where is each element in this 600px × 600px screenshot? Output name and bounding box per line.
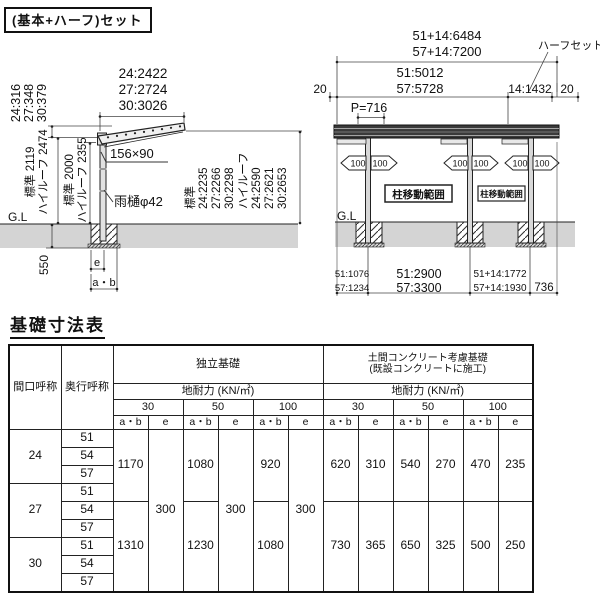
range-100-6: 100	[534, 159, 549, 169]
span-dim-2b: 57:3300	[396, 281, 441, 295]
cell-indep-ab100-g1: 920	[253, 429, 288, 501]
cell-doma-ab100-g1: 470	[463, 429, 498, 501]
rear-height-5: 24:2590	[251, 167, 263, 209]
sub-header-e: e	[358, 415, 393, 429]
cell-okuyuki: 51	[61, 483, 113, 501]
col-header-maguchi: 間口呼称	[9, 345, 61, 429]
cell-okuyuki: 51	[61, 429, 113, 447]
main-dim-57: 57:5728	[397, 81, 444, 96]
column-1	[366, 138, 371, 243]
cell-doma-e100-g2: 250	[498, 501, 533, 592]
bearing-header-1: 地耐力 (KN/㎡)	[113, 383, 323, 399]
rear-height-0: 標準	[183, 186, 197, 209]
beam-size-label: 156×90	[110, 146, 154, 161]
rise-dim-24: 24:316	[9, 84, 23, 122]
total-dim-51: 51+14:6484	[412, 28, 481, 43]
sub-header-e: e	[288, 415, 323, 429]
width-dim-24: 24:2422	[119, 66, 168, 81]
ground-band-left	[0, 224, 298, 248]
edge-dim-left: 20	[313, 82, 327, 96]
rise-dim-27: 27:348	[22, 84, 36, 122]
sub-header-e: e	[218, 415, 253, 429]
table-row: 54 1310 1230 1080 730 365 650 325 500 25…	[9, 501, 533, 519]
load-100: 100	[253, 399, 323, 415]
group-header-independent: 独立基礎	[113, 345, 323, 383]
span-dim-3b: 57+14:1930	[473, 283, 527, 294]
width-dim-27: 27:2724	[119, 82, 168, 97]
roof-beam	[334, 125, 559, 138]
span-dim-4: 736	[534, 282, 553, 294]
cell-indep-ab30-g2: 1310	[113, 501, 148, 592]
cell-okuyuki: 51	[61, 537, 113, 555]
cell-indep-ab30-g1: 1170	[113, 429, 148, 501]
roof-panel	[98, 123, 186, 147]
cell-maguchi-27: 27	[9, 483, 61, 537]
group-header-doma: 土間コンクリート考慮基礎 (既設コンクリートに施工)	[323, 345, 533, 383]
span-dim-2a: 51:2900	[396, 267, 441, 281]
cell-doma-e30-g2: 365	[358, 501, 393, 592]
load-30: 30	[323, 399, 393, 415]
cell-indep-ab50-g2: 1230	[183, 501, 218, 592]
load-50: 50	[393, 399, 463, 415]
sub-header-ab: a・b	[113, 415, 148, 429]
col-header-okuyuki: 奥行呼称	[61, 345, 113, 429]
cell-indep-e30: 300	[148, 429, 183, 592]
cell-maguchi-24: 24	[9, 429, 61, 483]
sub-header-ab: a・b	[393, 415, 428, 429]
rear-height-6: 27:2621	[264, 167, 276, 209]
front-height-inner-std: 標準 2000	[62, 154, 76, 206]
left-diagram-labels: 24:2422 27:2724 30:3026 24:316 27:348 30…	[8, 66, 289, 289]
foundation-dimension-table: 間口呼称 奥行呼称 独立基礎 土間コンクリート考慮基礎 (既設コンクリートに施工…	[8, 344, 534, 593]
cell-okuyuki: 57	[61, 519, 113, 537]
edge-dim-right: 20	[560, 82, 574, 96]
main-dim-51: 51:5012	[397, 65, 444, 80]
cell-doma-ab50-g1: 540	[393, 429, 428, 501]
range-100-5: 100	[512, 159, 527, 169]
cell-doma-ab100-g2: 500	[463, 501, 498, 592]
column-2	[468, 138, 473, 243]
cell-okuyuki: 57	[61, 573, 113, 592]
table-title: 基礎寸法表	[10, 311, 105, 339]
rear-height-2: 27:2266	[211, 167, 223, 209]
cell-doma-e30-g1: 310	[358, 429, 393, 501]
bearing-header-2: 地耐力 (KN/㎡)	[323, 383, 533, 399]
column-left	[100, 134, 106, 241]
cell-indep-ab50-g1: 1080	[183, 429, 218, 501]
move-range-label-2: 柱移動範囲	[480, 189, 523, 199]
front-height-outer-std: 標準 2119	[23, 147, 37, 198]
cell-doma-e100-g1: 235	[498, 429, 533, 501]
sub-header-e: e	[148, 415, 183, 429]
group-header-doma-line2: (既設コンクリートに施工)	[324, 364, 533, 376]
embed-depth-label: 550	[37, 255, 51, 275]
cell-maguchi-30: 30	[9, 537, 61, 592]
cell-okuyuki: 54	[61, 501, 113, 519]
eave-bracket-2	[441, 139, 467, 144]
range-100-2: 100	[372, 159, 387, 169]
sub-header-ab: a・b	[183, 415, 218, 429]
range-100-1: 100	[350, 159, 365, 169]
sub-header-ab: a・b	[253, 415, 288, 429]
load-50: 50	[183, 399, 253, 415]
cell-doma-ab30-g2: 730	[323, 501, 358, 592]
gl-label-left: G.L	[8, 210, 28, 224]
front-height-inner-high: ハイルーフ 2355	[77, 137, 89, 222]
pitch-label: P=716	[351, 101, 388, 115]
cell-doma-ab50-g2: 650	[393, 501, 428, 592]
table-row: 24 51 1170 300 1080 300 920 300 620 310 …	[9, 429, 533, 447]
rear-height-7: 30:2653	[277, 167, 289, 209]
cell-okuyuki: 54	[61, 447, 113, 465]
column-3	[529, 138, 534, 243]
eave-bracket-3	[502, 139, 528, 144]
gl-label-right: G.L	[337, 209, 357, 223]
sub-header-ab: a・b	[463, 415, 498, 429]
width-dim-30: 30:3026	[119, 98, 168, 113]
rise-dim-30: 30:379	[35, 84, 49, 122]
front-height-outer-high: ハイルーフ 2474	[38, 129, 50, 215]
load-100: 100	[463, 399, 533, 415]
group-header-doma-line1: 土間コンクリート考慮基礎	[324, 353, 533, 365]
load-30: 30	[113, 399, 183, 415]
cell-doma-e50-g2: 325	[428, 501, 463, 592]
range-100-4: 100	[473, 159, 488, 169]
rear-height-4: ハイルーフ	[238, 152, 250, 209]
cell-indep-e100: 300	[288, 429, 323, 592]
rear-height-1: 24:2235	[198, 167, 210, 209]
span-dim-1a: 51:1076	[335, 269, 369, 280]
cell-indep-e50: 300	[218, 429, 253, 592]
range-100-3: 100	[452, 159, 467, 169]
sub-header-e: e	[428, 415, 463, 429]
total-dim-57: 57+14:7200	[412, 44, 481, 59]
rear-height-3: 30:2298	[224, 167, 236, 209]
eave-bracket-1	[337, 139, 366, 144]
elevation-drawings: 24:2422 27:2724 30:3026 24:316 27:348 30…	[0, 0, 600, 310]
gutter-label: 雨樋φ42	[114, 194, 163, 209]
dim-e-label: e	[94, 257, 100, 269]
half-dim: 14:1432	[508, 82, 552, 96]
span-dim-1b: 57:1234	[335, 283, 369, 294]
cell-doma-e50-g1: 270	[428, 429, 463, 501]
dim-ab-label: a・b	[92, 277, 115, 289]
half-set-label: ハーフセット	[538, 39, 600, 52]
right-elevation-diagram	[334, 125, 575, 247]
cell-okuyuki: 57	[61, 465, 113, 483]
span-dim-3a: 51+14:1772	[473, 269, 527, 280]
sub-header-e: e	[498, 415, 533, 429]
cell-indep-ab100-g2: 1080	[253, 501, 288, 592]
move-range-label-1: 柱移動範囲	[392, 188, 445, 201]
catalog-page: (基本+ハーフ)セット	[0, 0, 600, 600]
sub-header-ab: a・b	[323, 415, 358, 429]
cell-doma-ab30-g1: 620	[323, 429, 358, 501]
cell-okuyuki: 54	[61, 555, 113, 573]
